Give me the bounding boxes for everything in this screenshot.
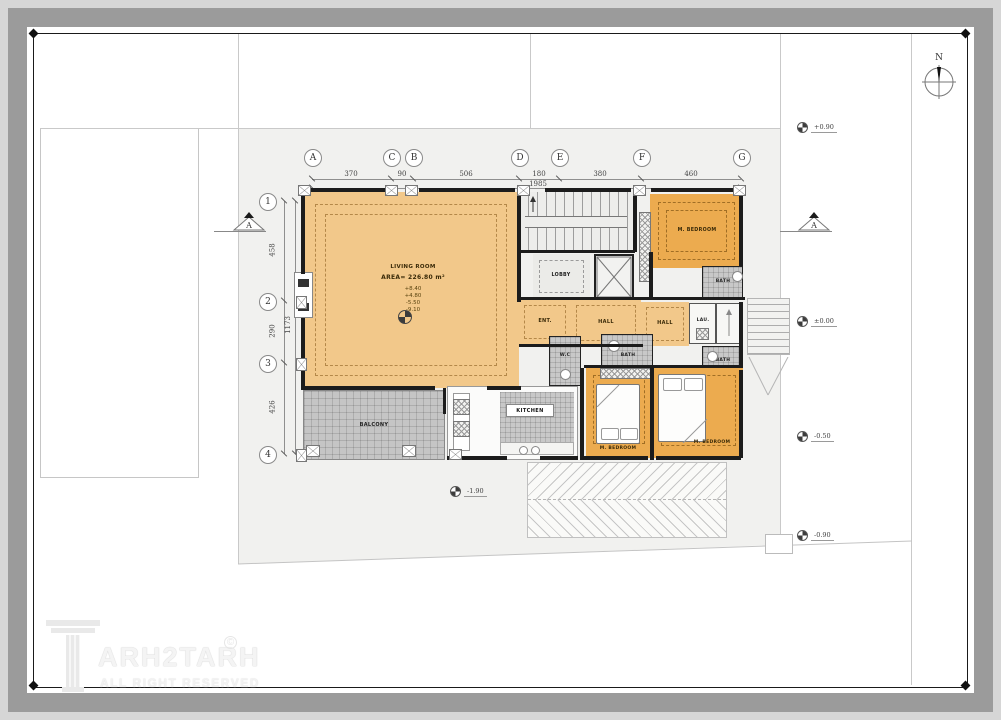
dim-label: 380	[593, 170, 606, 178]
spot-level: ±0.00	[797, 316, 837, 327]
wall-segment	[649, 252, 653, 300]
level-value: -0.50	[811, 432, 834, 442]
section-marker-icon: A	[232, 211, 266, 231]
spot-level-symbol-icon	[398, 310, 412, 324]
grid-row-label: 4	[265, 450, 271, 460]
grid-column-bubble: A	[304, 149, 322, 167]
driveway-hatch	[528, 463, 726, 500]
living-level: +8.40	[393, 286, 433, 293]
column-marker	[405, 185, 418, 196]
site-line	[911, 34, 912, 685]
bed-fold-line	[597, 385, 641, 407]
exterior-ramp	[747, 357, 790, 397]
utility-box	[765, 534, 793, 554]
wall-segment	[443, 388, 446, 414]
room-laundry: LAU.	[689, 303, 716, 344]
neighbor-building	[40, 128, 199, 478]
wall-segment	[419, 188, 515, 192]
driveway	[527, 462, 727, 538]
cooktop	[453, 399, 470, 415]
spot-level: -0.90	[797, 530, 834, 541]
room-label-hall: HALL	[657, 320, 673, 326]
kitchen-sink-counter	[500, 442, 574, 455]
column-marker	[385, 185, 398, 196]
bed	[658, 374, 706, 442]
grid-row-label: 1	[265, 197, 271, 207]
grid-column-label: B	[411, 153, 418, 163]
grid-row-bubble: 1	[259, 193, 277, 211]
watermark-logo-column-icon	[46, 620, 100, 626]
room-label-bedroom: M. BEDROOM	[600, 446, 637, 451]
cooktop	[453, 421, 470, 437]
room-label-ent: ENT.	[538, 318, 551, 324]
kitchen-floor-tile	[500, 392, 574, 442]
exterior-stairs	[747, 298, 790, 355]
room-label-bath: BATH	[716, 358, 731, 363]
level-symbol-icon	[797, 431, 808, 442]
room-living: LIVING ROOM AREA= 226.80 m² +8.40 +4.80 …	[303, 192, 519, 388]
dim-label: 290	[269, 324, 277, 337]
wall-segment	[656, 456, 741, 460]
kitchen-label-plate: KITCHEN	[506, 404, 554, 417]
level-value: -1.90	[464, 487, 487, 497]
wall-segment	[739, 302, 743, 366]
grid-column-bubble: G	[733, 149, 751, 167]
spot-level: -0.50	[797, 431, 834, 442]
column-marker	[296, 358, 307, 371]
room-label-wc: W.C	[560, 353, 571, 358]
grid-row-bubble: 4	[259, 446, 277, 464]
staircase	[519, 192, 633, 252]
room-lobby: LOBBY	[533, 254, 590, 299]
room-kitchen: KITCHEN	[447, 386, 578, 460]
level-symbol-icon	[450, 486, 461, 497]
balcony: BALCONY	[303, 390, 445, 460]
svg-text:N: N	[935, 53, 943, 63]
wall-segment	[651, 188, 739, 192]
grid-column-bubble: E	[551, 149, 569, 167]
dim-label: 370	[344, 170, 357, 178]
wall-segment	[580, 368, 584, 460]
grid-row-bubble: 2	[259, 293, 277, 311]
site-boundary-slant	[238, 538, 912, 566]
wall-segment	[517, 192, 521, 302]
grid-column-label: E	[557, 153, 564, 163]
level-symbol-icon	[797, 316, 808, 327]
grid-column-label: C	[389, 153, 396, 163]
living-level: +4.80	[393, 293, 433, 300]
elevator-x-icon	[596, 256, 632, 298]
dim-label: 506	[459, 170, 472, 178]
room-label-bath: BATH	[716, 279, 731, 284]
room-bedroom-bl: M. BEDROOM	[586, 368, 652, 458]
dim-label: 460	[684, 170, 697, 178]
room-label-living: LIVING ROOM	[390, 264, 435, 270]
svg-text:A: A	[810, 221, 817, 230]
grid-column-bubble: B	[405, 149, 423, 167]
grid-row-bubble: 3	[259, 355, 277, 373]
watermark: ARH2TARH © ALL RIGHT RESERVED	[46, 616, 266, 700]
living-level: -5.50	[393, 300, 433, 307]
room-label-lobby: LOBBY	[552, 273, 571, 278]
wall-segment	[650, 368, 654, 460]
dim-total-label: 1985	[529, 180, 547, 188]
room-label-bedroom: M. BEDROOM	[678, 228, 717, 233]
room-label-lau: LAU.	[697, 318, 710, 323]
fireplace-detail	[298, 279, 309, 287]
room-bath-tr: BATH	[702, 266, 743, 300]
dim-label: 90	[398, 170, 407, 178]
wall-segment	[519, 297, 745, 300]
north-arrow-icon: N	[920, 50, 958, 102]
column-marker	[296, 296, 307, 309]
dim-label: 458	[269, 243, 277, 256]
dim-label: 180	[532, 170, 545, 178]
room-label-balcony: BALCONY	[360, 422, 389, 428]
stair-arrow-icon	[523, 194, 543, 214]
sink-fixture	[732, 271, 743, 282]
up-arrow-icon	[717, 304, 741, 343]
column-marker	[449, 449, 462, 460]
column-marker	[402, 445, 416, 457]
pillow	[620, 428, 638, 440]
column-marker	[306, 445, 320, 457]
wall-segment	[301, 318, 305, 390]
watermark-brand: ARH2TARH	[98, 642, 261, 673]
dim-label: 426	[269, 400, 277, 413]
room-label-bath: BATH	[621, 353, 636, 358]
grid-column-bubble: C	[383, 149, 401, 167]
wall-segment	[305, 188, 385, 192]
wall-segment	[584, 365, 743, 368]
grid-column-label: D	[516, 153, 523, 163]
wall-segment	[739, 194, 743, 266]
room-bedroom-tr: M. BEDROOM	[650, 194, 743, 268]
pillow	[663, 378, 682, 391]
wall-segment	[545, 188, 631, 192]
wall-segment	[519, 344, 643, 347]
grid-row-label: 3	[265, 359, 271, 369]
room-label-kitchen: KITCHEN	[516, 408, 543, 414]
dimension-line	[312, 179, 741, 180]
level-value: +0.90	[811, 123, 837, 133]
spot-level: -1.90	[450, 486, 487, 497]
watermark-copyright: ©	[224, 636, 237, 649]
grid-column-label: A	[310, 153, 317, 163]
level-value: ±0.00	[811, 317, 837, 327]
column-marker	[298, 185, 311, 196]
stair-rail	[525, 216, 627, 228]
spot-level: +0.90	[797, 122, 837, 133]
wall-segment	[519, 250, 635, 253]
watermark-logo-column-icon	[66, 635, 80, 687]
grid-column-label: F	[639, 153, 645, 163]
closet	[600, 368, 652, 379]
driveway-hatch	[528, 500, 726, 537]
column-marker	[633, 185, 646, 196]
column-marker	[733, 185, 746, 196]
driveway-centerline	[528, 499, 726, 500]
sink-fixture	[531, 446, 540, 455]
site-line	[780, 34, 781, 545]
level-symbol-icon	[797, 530, 808, 541]
column-marker	[517, 185, 530, 196]
level-value: -0.90	[811, 531, 834, 541]
site-line	[530, 34, 531, 129]
wall-segment	[584, 456, 648, 460]
room-label-hall: HALL	[598, 319, 614, 325]
section-marker-icon: A	[797, 211, 831, 231]
pillow	[601, 428, 619, 440]
wall-segment	[540, 456, 578, 460]
grid-column-label: G	[738, 153, 745, 163]
drawing-sheet: N A C B D E F G 370 90 506 180 380 460 1…	[0, 0, 1001, 720]
grid-column-bubble: F	[633, 149, 651, 167]
site-boundary-top	[40, 128, 780, 129]
bed	[596, 384, 640, 444]
sink-fixture	[519, 446, 528, 455]
pillow	[684, 378, 703, 391]
washer	[696, 328, 709, 340]
toilet-fixture	[560, 369, 571, 380]
sink-fixture	[707, 351, 718, 362]
living-level-list: +8.40 +4.80 -5.50 -9.10	[393, 286, 433, 314]
column-marker	[296, 449, 307, 462]
fireplace	[294, 272, 313, 318]
section-line	[214, 231, 266, 232]
watermark-logo-column-icon	[51, 628, 95, 633]
room-area-label: AREA= 226.80 m²	[381, 274, 445, 281]
wall-segment	[301, 192, 305, 274]
wall-segment	[303, 386, 435, 390]
wall-segment	[633, 192, 637, 252]
room-label-bedroom: M. BEDROOM	[694, 440, 731, 445]
section-line	[780, 231, 832, 232]
watermark-tagline: ALL RIGHT RESERVED	[100, 676, 260, 690]
site-line	[238, 34, 239, 564]
dim-total-label: 1173	[284, 316, 292, 334]
grid-column-bubble: D	[511, 149, 529, 167]
level-symbol-icon	[797, 122, 808, 133]
wall-segment	[739, 370, 743, 458]
grid-row-label: 2	[265, 297, 271, 307]
watermark-logo-column-icon	[62, 687, 84, 692]
room-bedroom-br: M. BEDROOM	[654, 368, 743, 458]
wall-segment	[487, 386, 521, 390]
elevator	[594, 254, 634, 300]
svg-text:A: A	[245, 221, 252, 230]
dimension-line	[295, 201, 296, 454]
